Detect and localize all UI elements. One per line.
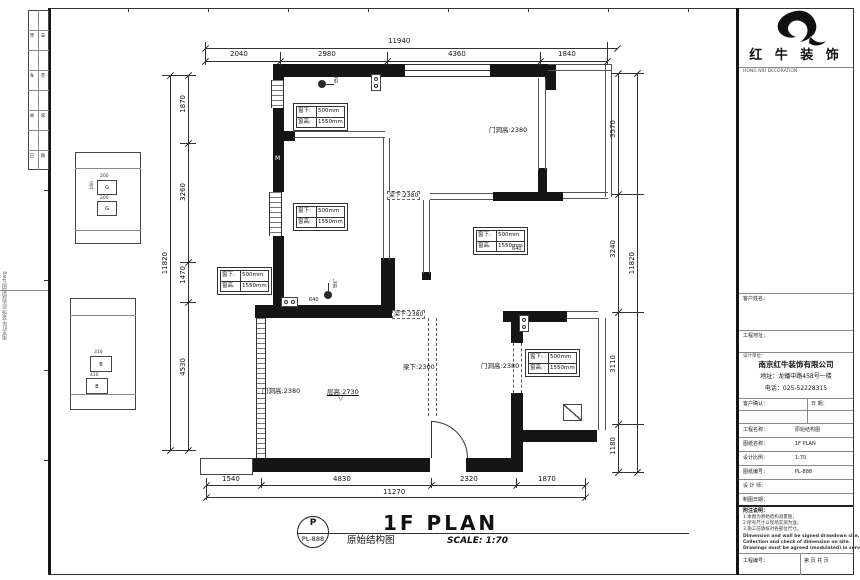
jamb-dim: 640: [512, 246, 522, 253]
company-phone: 电话：025-52228315: [740, 386, 852, 392]
dim-label: 4830: [333, 476, 351, 483]
dim-label: 11820: [162, 252, 169, 274]
bubble-letter: P: [297, 519, 329, 528]
wall-segment: [255, 305, 395, 318]
wall-segment: [273, 168, 284, 192]
wall-segment: [273, 108, 284, 148]
ruler-tick: [608, 8, 609, 12]
dim-label: 2040: [230, 51, 248, 58]
notes-line: 3.施工前请核对各部位尺寸。: [743, 527, 801, 533]
drawing-title-cn: 原始结构图: [347, 536, 395, 546]
tb-row-value: 原始结构图: [795, 427, 820, 434]
window: [598, 318, 606, 430]
drawing-title-main: 1F PLAN: [383, 511, 498, 535]
spec-value: 1550mm: [241, 282, 268, 292]
sign-table-line: [28, 30, 49, 31]
gas-label: 煤气: [333, 279, 339, 288]
opening-dashed: [521, 343, 522, 393]
legend-line: [70, 315, 136, 316]
spec-value: 1550mm: [317, 118, 344, 128]
ruler-tick: [688, 8, 689, 12]
dim-label: 11820: [629, 252, 636, 274]
sign-table-line: [28, 130, 49, 131]
beam-label: 梁下:2380: [387, 191, 420, 200]
window: [269, 192, 282, 236]
dim-label: 4530: [180, 358, 187, 376]
wall-segment: [493, 192, 563, 201]
ruler-tick: [128, 8, 129, 12]
notes-line: 1.本图为原始结构测量图；: [743, 515, 797, 521]
dim-label: 1870: [538, 476, 556, 483]
spec-value: 1550mm: [317, 218, 344, 228]
balcony-slab: [200, 458, 253, 475]
tb-row-label: 图纸编号：: [743, 469, 768, 476]
balcony-glazing: [563, 192, 608, 199]
tb-row-label: 图纸名称：: [743, 441, 768, 448]
sign-cell: 审: [30, 113, 36, 118]
wall-segment: [252, 458, 430, 472]
titleblock-divider: [739, 330, 853, 331]
margin-line: [0, 290, 48, 291]
dim-line: [205, 48, 618, 49]
balcony-glazing: [548, 64, 612, 71]
opening-dashed: [436, 318, 437, 416]
spec-label: 窗下:: [297, 107, 317, 118]
partition: [423, 200, 430, 274]
jamb-dim: 640: [309, 297, 319, 304]
notes-line-en: Drawings must be agreed (modulated) in s…: [743, 546, 860, 552]
sign-cell: 专: [30, 73, 36, 78]
wall-segment: [511, 430, 597, 442]
door-swing-arc: [431, 421, 468, 458]
dim-line: [637, 73, 638, 472]
dim-label: 3570: [610, 120, 617, 138]
legend-symbol-box: G: [97, 180, 117, 195]
sign-table-line: [28, 150, 49, 151]
ruler-tick: [44, 370, 48, 371]
window-spec-table: 窗下:500mm 窗高:1550mm: [528, 352, 577, 374]
window: [538, 78, 546, 170]
dim-line: [206, 497, 585, 498]
level-mark-icon: ▽: [338, 395, 343, 402]
dim-label: 2320: [460, 476, 478, 483]
extension-line: [540, 52, 541, 65]
gas-meter-icon: [318, 80, 326, 88]
spec-label: 窗高:: [297, 118, 317, 128]
extension-line: [180, 262, 196, 263]
wall-segment: [381, 258, 395, 308]
tb-row-label: 设 计 师：: [743, 483, 766, 490]
field-address: 工程地址：: [743, 333, 768, 340]
dim-label: 1180: [610, 437, 617, 455]
door-height-label: 门洞高:2380: [262, 388, 300, 395]
titleblock-divider: [739, 398, 853, 399]
dim-label: 3260: [180, 183, 187, 201]
titleblock-divider: [739, 410, 853, 411]
dim-label: 1540: [222, 476, 240, 483]
confirm-label: 客户确认：: [743, 401, 768, 408]
tb-row-label: 工程名称：: [743, 427, 768, 434]
wall-segment: [511, 393, 523, 433]
spec-label: 窗下:: [529, 353, 549, 364]
socket-dot: [374, 84, 378, 88]
dim-line: [170, 75, 171, 450]
flue-symbol: [563, 404, 582, 421]
logo-text-cn: 红 牛 装 饰: [740, 49, 852, 62]
ruler-tick: [44, 190, 48, 191]
door-height-label: 门洞高:2380: [481, 363, 519, 370]
titleblock-divider: [807, 398, 808, 423]
partition: [293, 131, 385, 138]
field-company-header: 设计单位：: [743, 354, 766, 360]
window: [271, 80, 284, 108]
sign-cell: 定: [41, 113, 47, 118]
notes-line-en: Dimension and wall be signed drawdown si…: [743, 534, 860, 540]
sheet-number-label: 工程编号：: [743, 558, 768, 565]
ruler-tick: [208, 8, 209, 12]
sign-cell: 期: [41, 153, 47, 158]
extension-line: [205, 42, 206, 65]
ruler-tick: [44, 280, 48, 281]
ruler-tick: [528, 8, 529, 12]
dim-label: 11270: [383, 489, 405, 496]
sign-table-line: [28, 50, 49, 51]
legend-dim: 160: [90, 181, 96, 190]
drawing-sheet: 会 签 专 业 审 定 日 期 南京红牛装饰·原始结构图.dwg 200 G 1…: [0, 0, 860, 580]
tb-row-label: 制图日期：: [743, 497, 768, 504]
titleblock-divider: [739, 67, 853, 68]
extension-line: [516, 478, 517, 488]
sign-table-line: [28, 90, 49, 91]
dim-label: 4360: [448, 51, 466, 58]
notes-title: 附注说明：: [743, 508, 768, 515]
spec-value: 500mm: [317, 107, 344, 118]
ruler-tick: [44, 460, 48, 461]
wall-segment: [490, 64, 548, 77]
dim-line: [205, 61, 608, 62]
extension-line: [162, 75, 196, 76]
tb-row-value: 1F PLAN: [795, 441, 816, 448]
window-spec-table: 窗下:500mm 窗高:1550mm: [296, 106, 345, 128]
dim-tick: [614, 45, 621, 52]
legend-dim: 200: [100, 174, 109, 180]
socket-dot: [374, 77, 378, 81]
spec-label: 窗高:: [221, 282, 241, 292]
dim-line: [206, 485, 585, 486]
dim-label: 1870: [180, 95, 187, 113]
wall-segment: [275, 64, 405, 77]
gas-meter-icon: [324, 291, 332, 299]
frame-right-border: [853, 8, 854, 575]
beam-label: 梁下:2300: [403, 364, 435, 371]
extension-line: [612, 312, 644, 313]
legend-symbol-box: G: [97, 201, 117, 216]
spec-label: 窗下:: [477, 231, 497, 242]
window: [405, 64, 490, 77]
sign-cell: 日: [30, 153, 36, 158]
legend-symbol-box: B: [90, 356, 112, 372]
dim-label: 1470: [180, 266, 187, 284]
extension-line: [585, 478, 586, 500]
legend-dim: 310: [94, 350, 103, 356]
dim-label: 2980: [318, 51, 336, 58]
partition: [430, 193, 493, 200]
socket-dot: [522, 325, 526, 329]
extension-line: [612, 73, 644, 74]
titleblock-left-border: [736, 8, 739, 575]
company-name: 南京红牛装饰有限公司: [740, 361, 852, 369]
dim-label: 3240: [610, 240, 617, 258]
spec-value: 1550mm: [549, 364, 576, 374]
titleblock-divider: [739, 505, 853, 507]
beam-label: 梁下:2380: [392, 310, 425, 319]
confirm-date-label: 日 期：: [811, 401, 828, 408]
dim-label: 1840: [558, 51, 576, 58]
socket-dot: [522, 318, 526, 322]
notes-line-en: Collection and check of dimension on sit…: [743, 540, 850, 546]
titleblock-divider: [739, 423, 853, 424]
extension-line: [261, 478, 262, 488]
ruler-tick: [368, 8, 369, 12]
tb-row-label: 设计比例：: [743, 455, 768, 462]
titleblock-divider: [739, 553, 853, 554]
titleblock-divider: [739, 465, 853, 466]
spec-value: 500mm: [241, 271, 268, 282]
dim-line: [618, 73, 619, 472]
legend-symbol-box: B: [86, 378, 108, 394]
extension-line: [387, 52, 388, 65]
gas-label: 煤气: [334, 74, 340, 83]
spec-label: 窗高:: [529, 364, 549, 374]
drawing-scale: SCALE: 1:70: [447, 537, 508, 546]
ruler-tick: [288, 8, 289, 12]
frame-top-border: [48, 8, 854, 9]
frame-bottom-border: [48, 574, 854, 575]
titleblock-divider: [739, 479, 853, 480]
dim-label: 11940: [388, 38, 410, 45]
logo-text-en: HONG NIU DECORATION: [743, 69, 797, 75]
legend-line: [75, 230, 141, 231]
notes-line: 2.所有尺寸以现场实测为准；: [743, 521, 801, 527]
spec-label: 窗高:: [477, 242, 497, 252]
extension-line: [180, 143, 196, 144]
sign-table-line: [28, 70, 49, 71]
bubble-code: PL-888: [297, 536, 329, 543]
spec-label: 窗高:: [297, 218, 317, 228]
legend-line: [70, 394, 136, 395]
titleblock-divider: [739, 293, 853, 294]
titleblock-divider: [739, 352, 853, 353]
extension-line: [206, 478, 207, 500]
tb-row-value: 1:70: [795, 455, 806, 462]
sheet-side-text: 南京红牛装饰·原始结构图.dwg: [2, 215, 9, 340]
sign-cell: 业: [41, 73, 47, 78]
sign-table-line: [28, 110, 49, 111]
spec-value: 500mm: [549, 353, 576, 364]
titleblock-divider: [739, 451, 853, 452]
socket-dot: [284, 300, 288, 304]
extension-line: [162, 450, 196, 451]
wall-segment: [538, 168, 547, 194]
gas-meter-stem: [326, 84, 334, 85]
sign-cell: 会: [30, 33, 36, 38]
window-spec-table: 窗下:500mm 窗高:1550mm: [220, 270, 269, 292]
extension-line: [180, 302, 196, 303]
titleblock-divider: [800, 553, 801, 575]
door-m-label: M: [275, 155, 280, 162]
extension-line: [607, 42, 608, 65]
sign-cell: 签: [41, 33, 47, 38]
page-count-label: 第 页 共 页: [804, 558, 829, 565]
spec-value: 500mm: [497, 231, 524, 242]
window: [567, 311, 598, 319]
socket-dot: [291, 300, 295, 304]
tb-row-value: PL-888: [795, 469, 812, 476]
door-marker-wall: M: [273, 148, 284, 168]
gas-meter-stem: [328, 283, 329, 291]
extension-line: [280, 52, 281, 65]
door-height-label: 门洞高:2380: [489, 127, 527, 134]
extension-line: [612, 424, 644, 425]
spec-value: 500mm: [317, 207, 344, 218]
spec-label: 窗下:: [297, 207, 317, 218]
extension-line: [612, 194, 644, 195]
spec-label: 窗下:: [221, 271, 241, 282]
extension-line: [612, 472, 644, 473]
titleblock-divider: [739, 437, 853, 438]
extension-line: [431, 478, 432, 488]
ruler-tick: [448, 8, 449, 12]
window-spec-table: 窗下:500mm 窗高:1550mm: [296, 206, 345, 228]
hongniu-logo-icon: [768, 10, 832, 46]
field-customer: 客户姓名：: [743, 296, 768, 303]
titleblock-divider: [739, 493, 853, 494]
company-address: 地址：龙蟠中路458号一楼: [740, 374, 852, 380]
wall-segment: [273, 64, 284, 80]
dim-label: 3110: [610, 355, 617, 373]
legend-line: [75, 168, 141, 169]
